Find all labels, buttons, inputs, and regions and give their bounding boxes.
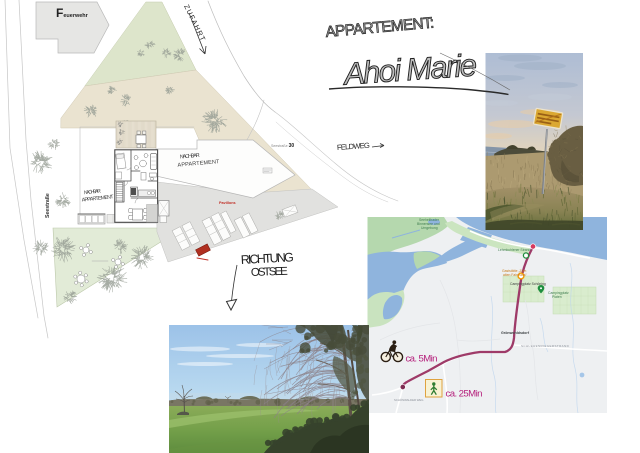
svg-text:ca. 25Min: ca. 25Min <box>446 389 483 400</box>
svg-text:APPARTEMENT:: APPARTEMENT: <box>325 14 436 41</box>
svg-text:Grönwohldsdorf: Grönwohldsdorf <box>501 331 530 335</box>
svg-text:RICHTUNG: RICHTUNG <box>240 250 294 267</box>
svg-text:alten Fahrhaus“: alten Fahrhaus“ <box>503 273 527 277</box>
svg-text:Umgebung: Umgebung <box>421 226 438 230</box>
svg-text:Seestraße: Seestraße <box>45 193 51 218</box>
svg-text:Seestraße 30: Seestraße 30 <box>271 143 294 149</box>
svg-text:Pavillons: Pavillons <box>219 201 236 205</box>
svg-text:ca. 5Min: ca. 5Min <box>406 354 438 365</box>
svg-text:SCHLEHENRIEGERSTRAND: SCHLEHENRIEGERSTRAND <box>521 344 570 348</box>
svg-text:ZUFAHRT: ZUFAHRT <box>182 4 206 44</box>
svg-text:FELDWEG: FELDWEG <box>337 141 371 152</box>
svg-text:Ahoi Marie: Ahoi Marie <box>341 47 478 91</box>
svg-text:OSTSEE: OSTSEE <box>251 266 289 279</box>
svg-text:SCHÖNWALDER WEG: SCHÖNWALDER WEG <box>394 398 423 402</box>
svg-text:Lehmkuhlener Strand: Lehmkuhlener Strand <box>498 248 531 252</box>
svg-text:Campingplatz Schöning: Campingplatz Schöning <box>510 282 546 286</box>
svg-text:Platen: Platen <box>552 295 562 299</box>
